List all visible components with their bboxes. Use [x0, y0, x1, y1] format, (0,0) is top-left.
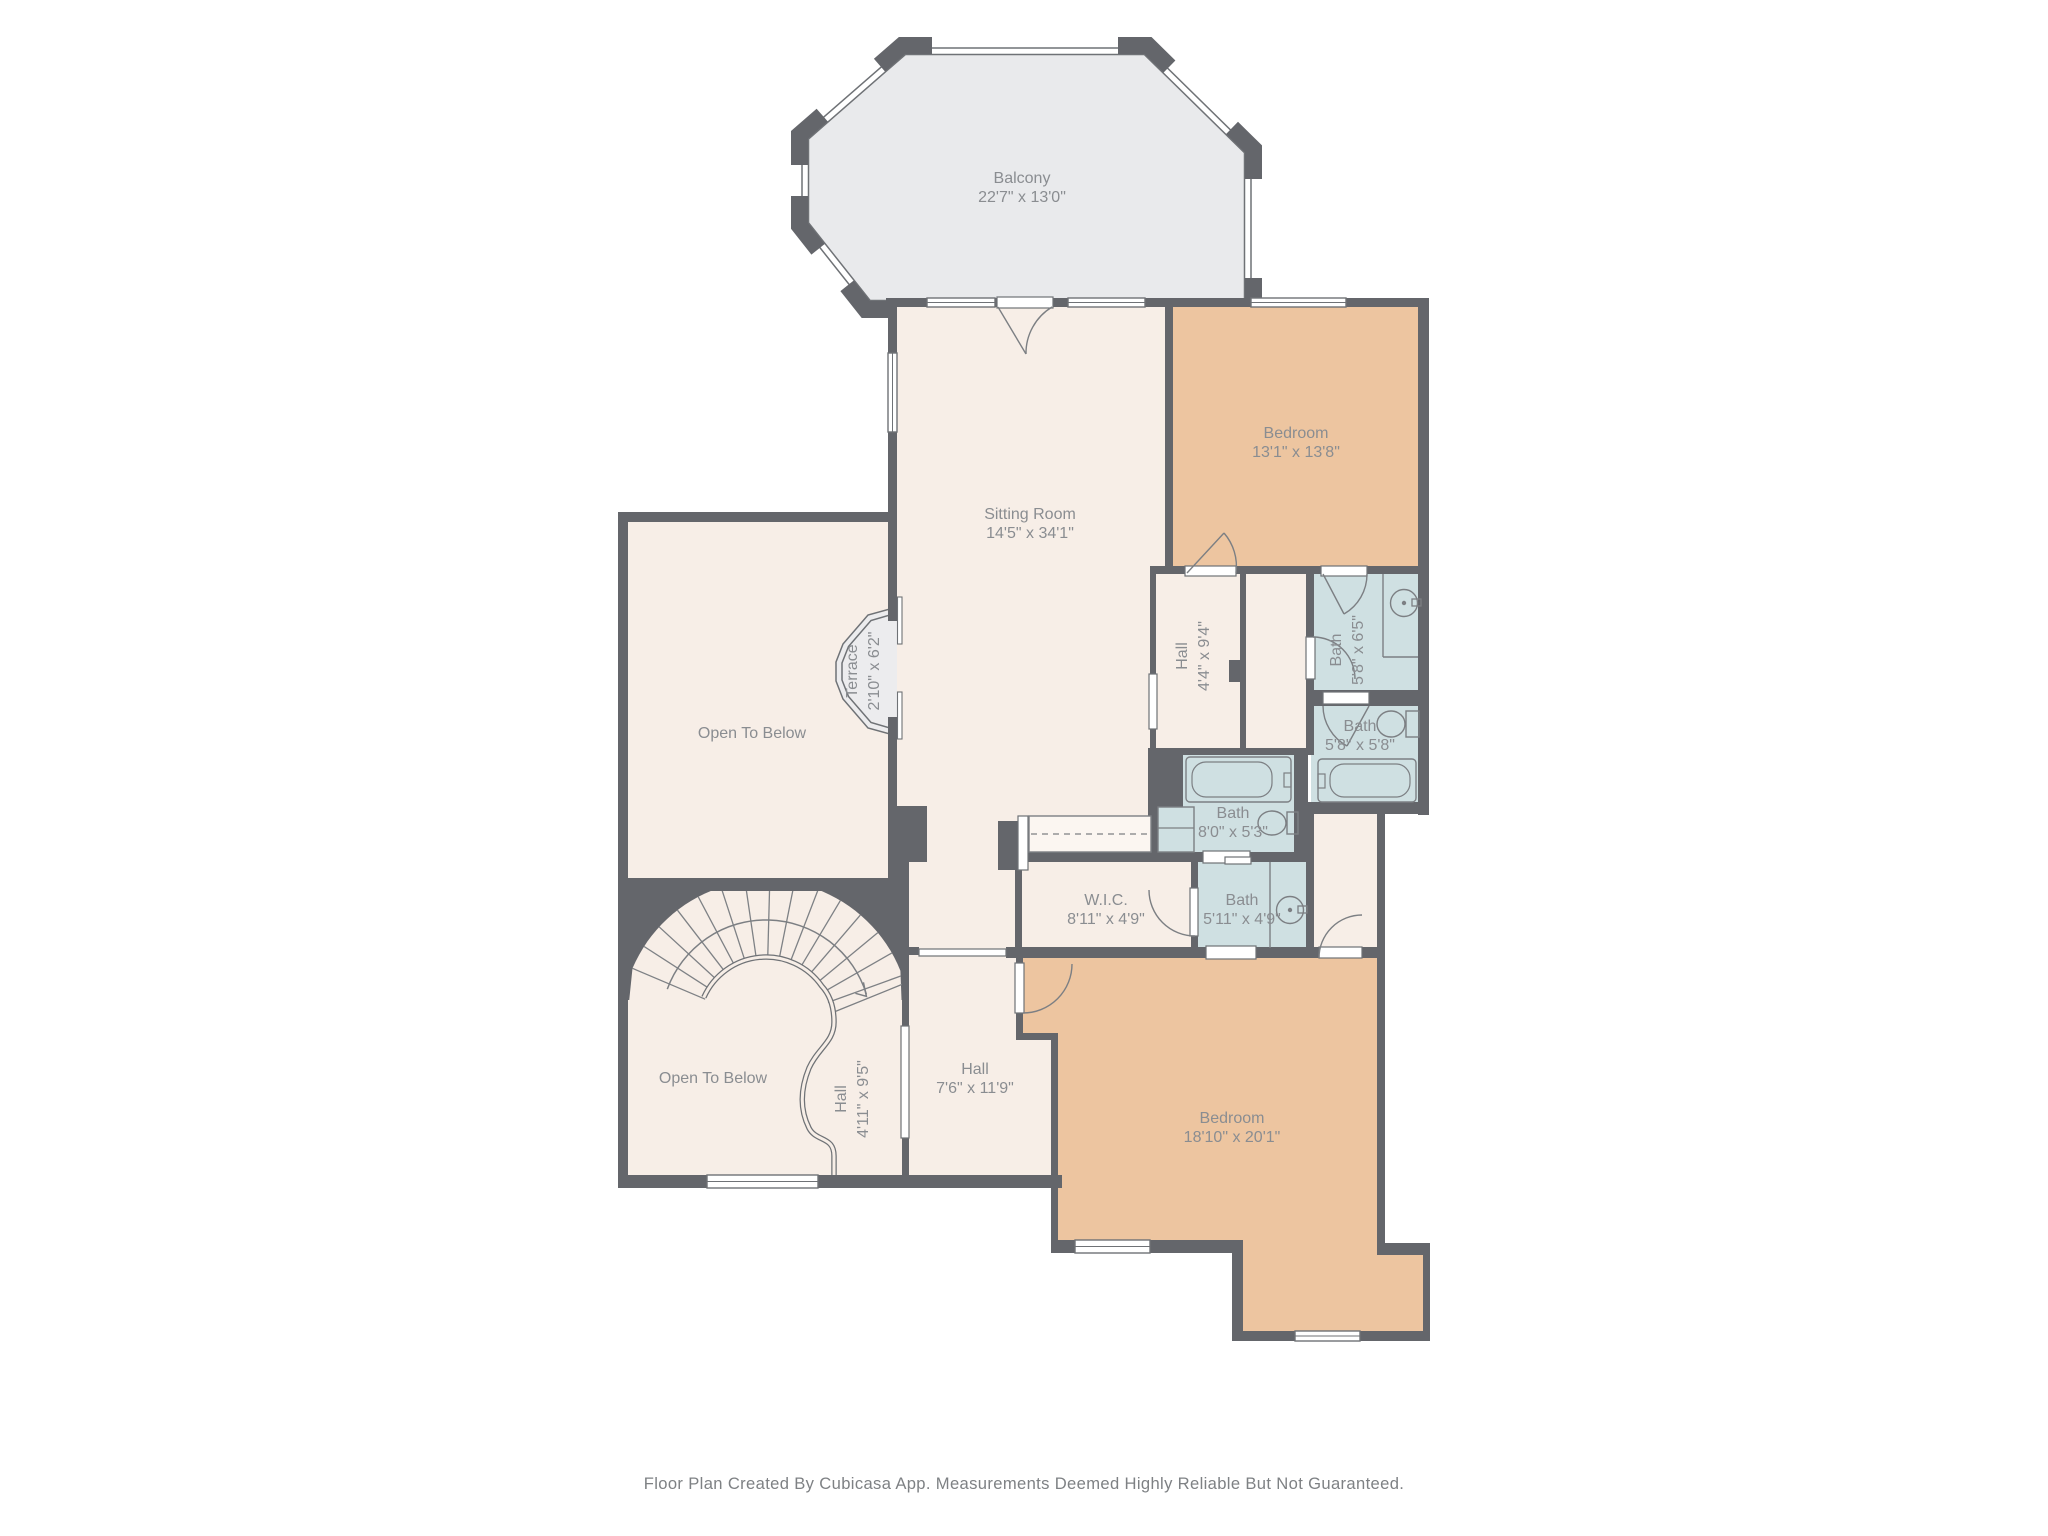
svg-text:Hall: Hall [833, 1085, 850, 1113]
svg-text:4'4" x 9'4": 4'4" x 9'4" [1196, 621, 1213, 691]
svg-text:8'0" x 5'3": 8'0" x 5'3" [1198, 824, 1268, 841]
svg-text:5'8" x 6'5": 5'8" x 6'5" [1350, 615, 1367, 685]
svg-text:Bath: Bath [1344, 718, 1377, 735]
svg-text:Bath: Bath [1226, 892, 1259, 909]
svg-text:Hall: Hall [1174, 642, 1191, 670]
svg-text:Open To Below: Open To Below [659, 1070, 768, 1087]
svg-text:14'5" x 34'1": 14'5" x 34'1" [986, 525, 1074, 542]
svg-text:Terrace: Terrace [844, 644, 861, 697]
svg-text:Open To Below: Open To Below [698, 725, 807, 742]
svg-text:W.I.C.: W.I.C. [1084, 892, 1128, 909]
svg-text:2'10" x 6'2": 2'10" x 6'2" [866, 632, 883, 711]
svg-text:18'10" x 20'1": 18'10" x 20'1" [1184, 1129, 1281, 1146]
svg-text:Bath: Bath [1217, 805, 1250, 822]
svg-text:Balcony: Balcony [994, 170, 1051, 187]
svg-text:4'11" x 9'5": 4'11" x 9'5" [855, 1060, 872, 1138]
svg-text:Bedroom: Bedroom [1200, 1110, 1265, 1127]
svg-text:7'6" x 11'9": 7'6" x 11'9" [936, 1080, 1014, 1097]
svg-text:5'11" x 4'9": 5'11" x 4'9" [1203, 911, 1281, 928]
svg-text:Bath: Bath [1328, 634, 1345, 667]
svg-text:Bedroom: Bedroom [1264, 425, 1329, 442]
svg-text:Hall: Hall [961, 1061, 989, 1078]
svg-text:Sitting Room: Sitting Room [984, 506, 1076, 523]
svg-text:22'7" x 13'0": 22'7" x 13'0" [978, 189, 1066, 206]
svg-text:13'1" x 13'8": 13'1" x 13'8" [1252, 444, 1340, 461]
svg-text:Floor Plan Created By Cubicasa: Floor Plan Created By Cubicasa App. Meas… [644, 1474, 1405, 1493]
svg-text:5'8" x 5'8": 5'8" x 5'8" [1325, 737, 1395, 754]
svg-text:8'11" x 4'9": 8'11" x 4'9" [1067, 911, 1145, 928]
